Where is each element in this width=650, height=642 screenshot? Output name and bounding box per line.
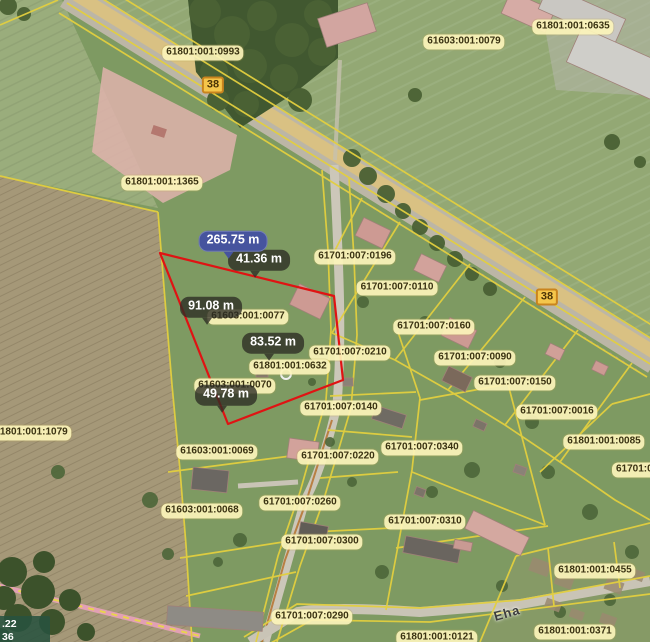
parcel-label: 61603:001:0069 (176, 445, 257, 460)
road-number-badge: 38 (536, 289, 558, 306)
parcel-label: 61801:001:1079 (0, 426, 72, 441)
parcel-label: 61701:007:0260 (259, 496, 340, 511)
parcel-label: 61701:00 (612, 463, 650, 478)
parcel-label: 61701:007:0016 (516, 405, 597, 420)
parcel-label: 61701:007:0290 (271, 610, 352, 625)
parcel-label: 61701:007:0150 (474, 376, 555, 391)
coordinate-line: .22 (2, 618, 42, 631)
parcel-label: 61701:007:0140 (300, 401, 381, 416)
parcel-label: 61701:007:0110 (357, 281, 438, 296)
measure-segment-badge: 83.52 m (242, 333, 304, 354)
parcel-label: 61801:001:0635 (532, 20, 613, 35)
parcel-label: 61801:001:0632 (249, 360, 330, 375)
parcel-label: 61801:001:1365 (121, 176, 202, 191)
plowed-field (0, 176, 192, 642)
parcel-label: 61603:001:0079 (423, 35, 504, 50)
parcel-label: 61801:001:0085 (563, 435, 644, 450)
parcel-label: 61701:007:0340 (381, 441, 462, 456)
parcel-label: 61701:007:0160 (393, 320, 474, 335)
parcel-label: 61701:007:0196 (314, 250, 395, 265)
coordinate-line: 36 (2, 631, 42, 642)
parcel-label: 61801:001:0121 (396, 631, 477, 642)
parcel-label: 61801:001:0993 (162, 46, 243, 61)
measure-total-badge: 265.75 m (199, 231, 268, 252)
road-number-badge: 38 (202, 77, 224, 94)
measure-segment-badge: 91.08 m (180, 297, 242, 318)
parcel-label: 61701:007:0300 (281, 535, 362, 550)
parcel-label: 61701:007:0310 (384, 515, 465, 530)
measure-segment-badge: 49.78 m (195, 385, 257, 406)
parcel-label: 61603:001:0068 (161, 504, 242, 519)
coordinate-readout: .22 36 (0, 616, 50, 642)
parcel-label: 61701:007:0090 (434, 351, 515, 366)
map-app: 61801:001:0993 61603:001:0079 61801:001:… (0, 0, 650, 642)
measure-segment-badge: 41.36 m (228, 250, 290, 271)
parcel-label: 61801:001:0455 (554, 564, 635, 579)
parcel-label: 61701:007:0210 (309, 346, 390, 361)
parcel-label: 61701:007:0220 (297, 450, 378, 465)
parcel-label: 61801:001:0371 (534, 625, 615, 640)
